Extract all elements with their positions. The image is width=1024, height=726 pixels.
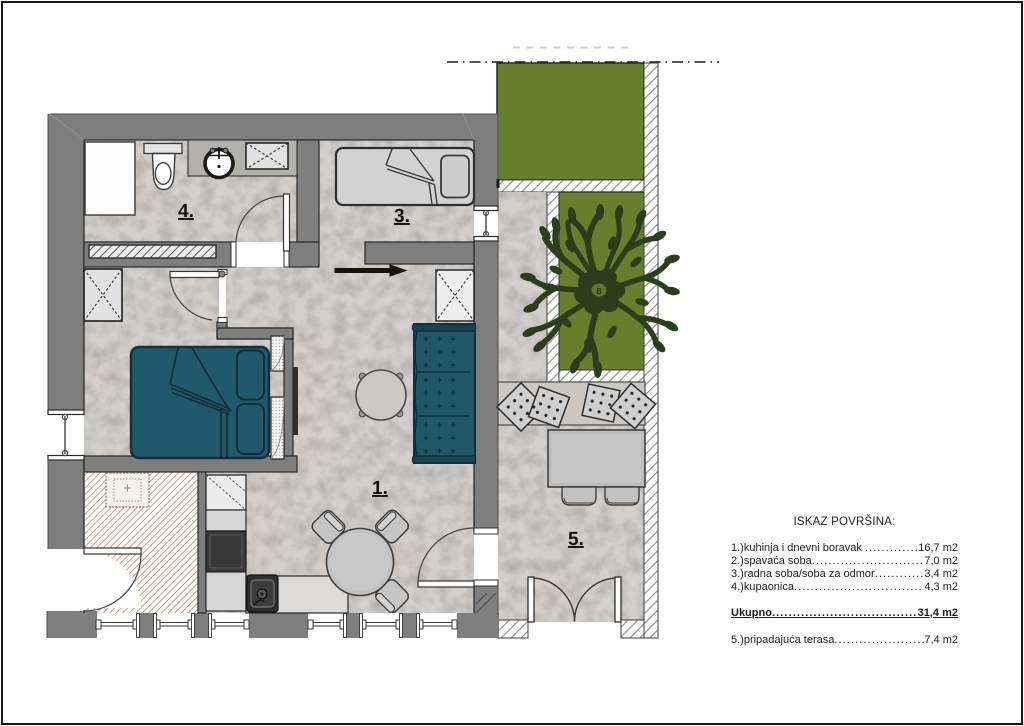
svg-text:5.: 5. bbox=[568, 529, 584, 550]
svg-text:4.: 4. bbox=[178, 201, 194, 222]
svg-text:3.: 3. bbox=[394, 206, 410, 227]
svg-text:B: B bbox=[597, 287, 602, 296]
svg-text:1.: 1. bbox=[372, 478, 388, 499]
